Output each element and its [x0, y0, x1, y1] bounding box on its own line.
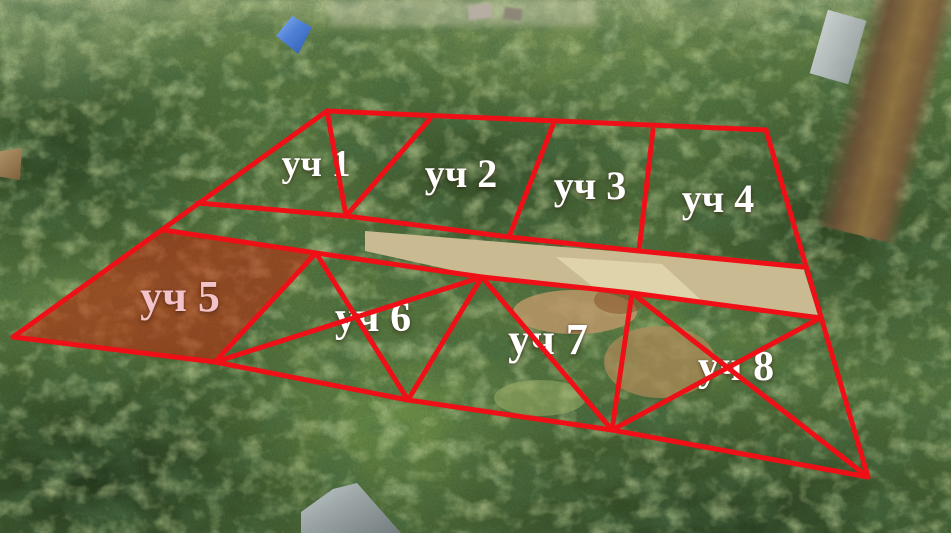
plot-boundary-line [509, 237, 639, 251]
plot-boundary-line [346, 216, 509, 237]
plot-boundary-line [509, 125, 553, 237]
plot-boundary-line [408, 400, 612, 430]
plot-boundary-line [639, 251, 803, 267]
plot-boundary-line [639, 130, 653, 251]
plot-boundary-lines [0, 0, 951, 533]
plot-boundary-line [327, 111, 766, 130]
aerial-plot-photo: уч 1уч 2уч 3уч 4уч 5уч 6уч 7уч 8 [0, 0, 951, 533]
plot-boundary-line [766, 130, 868, 477]
plot-boundary-line [327, 111, 346, 216]
plot-boundary-line [316, 253, 482, 277]
plot-boundary-line [198, 203, 346, 216]
plot-boundary-line [346, 119, 430, 216]
plot-boundary-line [612, 293, 632, 430]
plot-boundary-line [13, 337, 215, 362]
plot-boundary-line [632, 293, 868, 477]
plot-boundary-line [482, 277, 632, 293]
plot-boundary-line [482, 277, 612, 430]
plot-boundary-line [163, 230, 316, 253]
plot-boundary-line [13, 111, 327, 337]
plot-boundary-line [612, 430, 868, 477]
plot-boundary-line [215, 362, 408, 400]
